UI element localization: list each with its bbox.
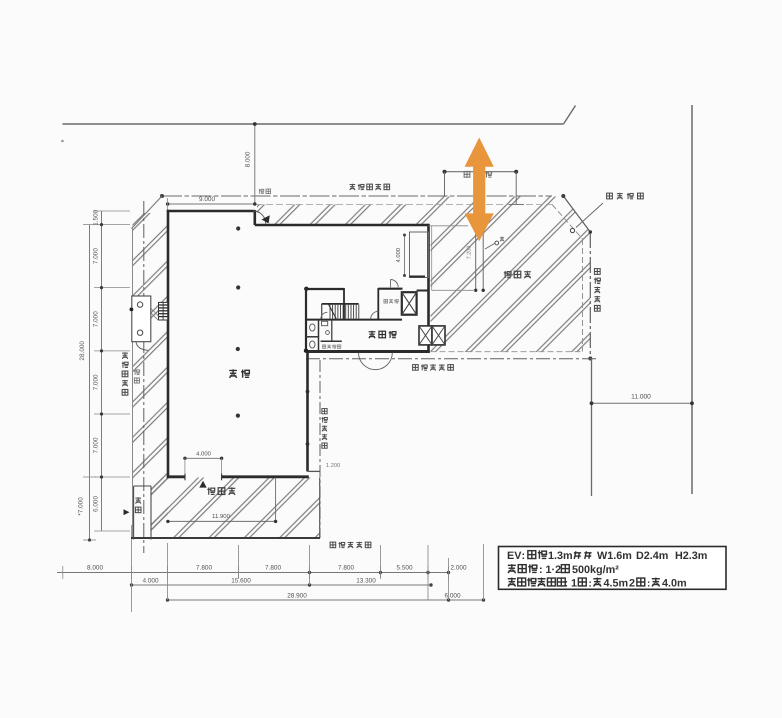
svg-text:8.000: 8.000 xyxy=(87,564,103,571)
svg-text:4.0m: 4.0m xyxy=(662,578,687,590)
svg-text:8.000: 8.000 xyxy=(244,151,251,167)
svg-text:4.5m: 4.5m xyxy=(604,578,629,590)
svg-text:7.200: 7.200 xyxy=(467,246,473,260)
svg-text:EV: EV xyxy=(507,550,522,562)
svg-text:15.600: 15.600 xyxy=(231,577,251,584)
svg-text:4.000: 4.000 xyxy=(143,577,159,584)
svg-text:H2.3m: H2.3m xyxy=(675,550,707,562)
svg-text:1.200: 1.200 xyxy=(326,462,341,469)
svg-text:1: 1 xyxy=(571,578,577,590)
svg-text:2: 2 xyxy=(629,578,635,590)
svg-text:5.500: 5.500 xyxy=(397,564,413,571)
svg-text:28.000: 28.000 xyxy=(79,341,86,361)
svg-text:13.300: 13.300 xyxy=(356,577,376,584)
svg-text:500kg/m²: 500kg/m² xyxy=(572,564,619,576)
svg-text:7.000: 7.000 xyxy=(93,248,100,264)
svg-text:1·2: 1·2 xyxy=(546,564,562,576)
svg-text:7.000: 7.000 xyxy=(93,311,100,327)
svg-text:4.000: 4.000 xyxy=(196,450,211,457)
svg-text:6.000: 6.000 xyxy=(445,592,461,599)
svg-text:11.900: 11.900 xyxy=(212,513,231,520)
svg-text:1.500: 1.500 xyxy=(93,209,100,225)
svg-text::: : xyxy=(539,564,543,576)
svg-text:9.000: 9.000 xyxy=(199,196,215,203)
svg-text:7.000: 7.000 xyxy=(93,437,100,453)
svg-text::: : xyxy=(565,578,569,590)
svg-text:7.800: 7.800 xyxy=(265,564,281,571)
svg-text:6.000: 6.000 xyxy=(93,496,100,512)
svg-text:28.900: 28.900 xyxy=(287,592,307,599)
svg-text:2.000: 2.000 xyxy=(451,564,467,571)
svg-text:*7.000: *7.000 xyxy=(78,497,85,516)
svg-text:11.000: 11.000 xyxy=(631,394,651,401)
svg-text:7.000: 7.000 xyxy=(93,374,100,390)
svg-text:4.000: 4.000 xyxy=(395,248,402,263)
svg-text::: : xyxy=(522,550,526,562)
svg-text:7.800: 7.800 xyxy=(196,564,212,571)
svg-text:7.800: 7.800 xyxy=(338,564,354,571)
svg-text::: : xyxy=(589,579,592,590)
svg-text::: : xyxy=(647,579,650,590)
svg-text:W1.6m: W1.6m xyxy=(597,550,632,562)
svg-text:1.3m: 1.3m xyxy=(548,550,573,562)
svg-text:D2.4m: D2.4m xyxy=(636,550,668,562)
